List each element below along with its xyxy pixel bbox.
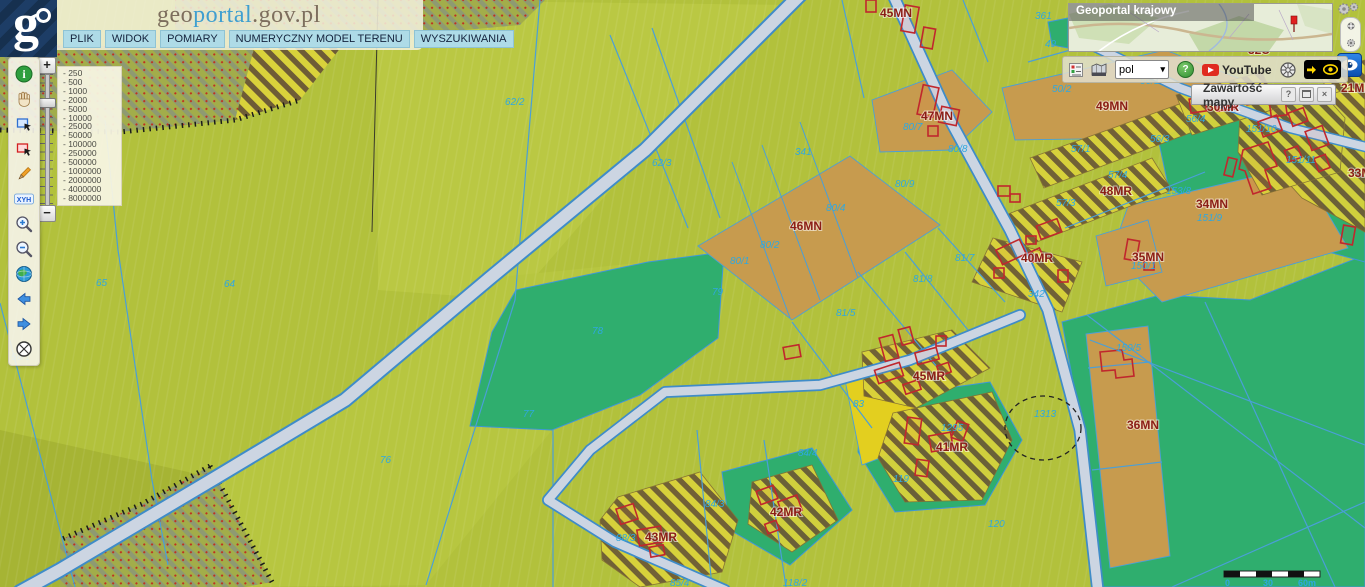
globe-button[interactable] (12, 263, 36, 285)
xyh-coordinates-button[interactable]: XYH (12, 188, 36, 210)
zone-code: 48MR (1100, 184, 1132, 198)
parcel-number: 151/10 (1246, 124, 1277, 135)
parcel-number: 341 (795, 147, 812, 158)
xyh-icon: XYH (14, 190, 34, 208)
info-button[interactable]: i (12, 63, 36, 85)
parcel-number: 80/1 (730, 256, 749, 267)
menu-item-wyszukiwania[interactable]: WYSZUKIWANIA (414, 30, 514, 48)
zone-code: 41MR (936, 440, 968, 454)
map-content-panel-title: Zawartość mapy (1192, 81, 1281, 109)
site-title-portal: portal (193, 2, 252, 28)
youtube-play-icon (1202, 64, 1219, 76)
svg-text:XYH: XYH (17, 197, 31, 204)
parcel-number: 76 (380, 455, 392, 466)
zone-code: 36MN (1127, 418, 1159, 432)
yellow-eye-icon (1323, 64, 1338, 75)
wheel-icon (1280, 62, 1296, 78)
zone-code: 34MN (1196, 197, 1228, 211)
geoportal-logo[interactable]: g (0, 0, 57, 57)
parcel-number: 81/8 (913, 274, 933, 285)
site-title-geo: geo (157, 2, 193, 28)
parcel-number: 342 (1028, 289, 1045, 300)
menu-item-pomiary[interactable]: POMIARY (160, 30, 225, 48)
parcel-number: 84/4 (798, 448, 818, 459)
mini-gear-icon[interactable] (1346, 38, 1356, 48)
zone-code: 45MR (913, 369, 945, 383)
zoom-out-button[interactable] (12, 238, 36, 260)
parcel-number: 77 (523, 409, 535, 420)
zone-code: 45MN (880, 6, 912, 20)
top-toolbar: pol ▾ ? YouTube (1062, 56, 1348, 83)
zoom-slider-handle[interactable] (38, 98, 56, 108)
main-menu: PLIKWIDOKPOMIARYNUMERYCZNY MODEL TERENUW… (63, 30, 514, 48)
parcel-number: 64 (224, 279, 236, 290)
parcel-number: 151/9 (1197, 213, 1222, 224)
map-scale-bar (1224, 571, 1320, 577)
left-toolbar: i XYH (8, 57, 40, 366)
parcel-number: 62/2 (505, 97, 525, 108)
parcel-number: 81/5 (836, 308, 856, 319)
parcel-number: 361 (1035, 11, 1052, 22)
pan-button[interactable] (12, 88, 36, 110)
scale-option[interactable]: - 8000000 (63, 194, 121, 203)
zoom-slider-track[interactable] (45, 74, 50, 206)
site-title-suffix: .gov.pl (252, 2, 321, 28)
add-overlay-icon[interactable] (1346, 21, 1356, 31)
previous-view-button[interactable] (12, 288, 36, 310)
scale-list-panel: - 250- 500- 1000- 2000- 5000- 10000- 250… (57, 66, 122, 206)
overview-map-panel[interactable]: Geoportal krajowy (1068, 3, 1333, 52)
parcel-number: 79 (712, 287, 724, 298)
zone-code: 21MR (1341, 81, 1365, 95)
map-content-panel-header[interactable]: Zawartość mapy ? × (1191, 84, 1336, 105)
logo-g-glyph: g (13, 0, 39, 53)
zone-code: 42MR (770, 505, 802, 519)
parcel-number: 151/11 (1286, 155, 1316, 166)
parcel-number: 83 (853, 399, 865, 410)
crosshair-circle-icon (15, 340, 33, 358)
menu-item-numeryczny-model-terenu[interactable]: NUMERYCZNY MODEL TERENU (229, 30, 410, 48)
zoom-minus-button[interactable]: − (38, 205, 56, 222)
select-area-button[interactable] (12, 113, 36, 135)
zone-code: 33MR (1348, 166, 1365, 180)
parcel-number: 1295 (941, 423, 964, 434)
parcel-number: 80/4 (826, 203, 846, 214)
parcel-number: 49 (1045, 39, 1057, 50)
pencil-icon (15, 165, 33, 183)
language-select[interactable]: pol ▾ (1115, 60, 1169, 79)
parcel-number: 57/4 (1108, 170, 1128, 181)
next-view-button[interactable] (12, 313, 36, 335)
parcel-number: 78 (592, 326, 604, 337)
blue-rectangle-select-icon (15, 115, 33, 133)
arrow-right-icon (15, 315, 33, 333)
panel-close-button[interactable]: × (1317, 87, 1332, 102)
accessibility-wheel-button[interactable] (1280, 62, 1296, 78)
red-rectangle-select-icon (15, 140, 33, 158)
zone-code: 49MN (1096, 99, 1128, 113)
parcel-number: 65 (96, 278, 108, 289)
scale-bar-label: 30 (1263, 578, 1273, 587)
parcel-number: 153/8 (1166, 186, 1191, 197)
panel-help-button[interactable]: ? (1281, 87, 1296, 102)
panel-minimize-button[interactable] (1299, 87, 1314, 102)
info-icon: i (15, 65, 33, 83)
zone-code: 35MN (1132, 250, 1164, 264)
parcel-number: 120 (988, 519, 1005, 530)
parcel-number: 50/2 (1052, 84, 1072, 95)
zoom-out-icon (15, 240, 33, 258)
chevron-down-icon: ▾ (1160, 64, 1165, 75)
zoom-in-icon (15, 215, 33, 233)
zoom-plus-button[interactable]: + (38, 57, 56, 74)
parcel-number: 57/1 (1071, 144, 1090, 155)
map-canvas[interactable]: 62/262/3646566/1767778793413614950/256/1… (0, 0, 1365, 587)
parcel-number: 80/2 (760, 240, 780, 251)
zoom-in-button[interactable] (12, 213, 36, 235)
legend-icon (1069, 63, 1083, 77)
parcel-number: 1313 (1034, 409, 1057, 420)
draw-button[interactable] (12, 163, 36, 185)
map-icon (1091, 63, 1107, 77)
full-extent-button[interactable] (12, 338, 36, 360)
parcel-number: 84/3 (705, 499, 725, 510)
language-value: pol (1119, 64, 1134, 76)
zone-code: 43MR (645, 530, 677, 544)
scale-bar-label: 60m (1298, 578, 1316, 587)
scale-bar-label: 0 (1225, 578, 1230, 587)
yellow-arrow-icon (1306, 65, 1317, 75)
right-mini-toolbar (1340, 17, 1361, 52)
contrast-toggle-group[interactable] (1304, 60, 1341, 79)
logo-dot (36, 8, 51, 23)
parcel-number: 56/4 (1186, 114, 1206, 125)
help-button[interactable]: ? (1177, 61, 1194, 78)
arrow-left-icon (15, 290, 33, 308)
parcel-number: 62/3 (652, 158, 672, 169)
menu-item-widok[interactable]: WIDOK (105, 30, 156, 48)
basemap-button[interactable] (1091, 63, 1107, 77)
geoportal-app: 62/262/3646566/1767778793413614950/256/1… (0, 0, 1365, 587)
zone-code: 47MN (921, 109, 953, 123)
youtube-label: YouTube (1222, 63, 1272, 77)
parcel-number: 57/3 (1056, 198, 1076, 209)
parcel-number: 80/8 (948, 144, 968, 155)
parcel-number: 150/5 (1116, 343, 1141, 354)
parcel-number: 56/3 (1150, 134, 1170, 145)
parcel-number: 85/4 (670, 578, 690, 587)
parcel-number: 81/7 (955, 253, 975, 264)
minimize-icon (1302, 90, 1311, 98)
parcel-number: 118/2 (783, 578, 808, 587)
deselect-area-button[interactable] (12, 138, 36, 160)
parcel-number: 80/9 (895, 179, 915, 190)
overview-map-title: Geoportal krajowy (1069, 4, 1254, 21)
parcel-number: 88/3 (616, 533, 636, 544)
parcel-number: 119 (893, 474, 909, 485)
legend-button[interactable] (1069, 63, 1083, 77)
zone-code: 40MR (1021, 251, 1053, 265)
globe-icon (15, 265, 33, 283)
site-title: geoportal.gov.pl (157, 2, 321, 29)
header-bar: geoportal.gov.pl PLIKWIDOKPOMIARYNUMERYC… (57, 0, 423, 50)
hand-icon (15, 90, 33, 108)
youtube-button[interactable]: YouTube (1202, 63, 1272, 77)
zone-code: 46MN (790, 219, 822, 233)
menu-item-plik[interactable]: PLIK (63, 30, 101, 48)
parcel-number: 80/7 (903, 122, 923, 133)
